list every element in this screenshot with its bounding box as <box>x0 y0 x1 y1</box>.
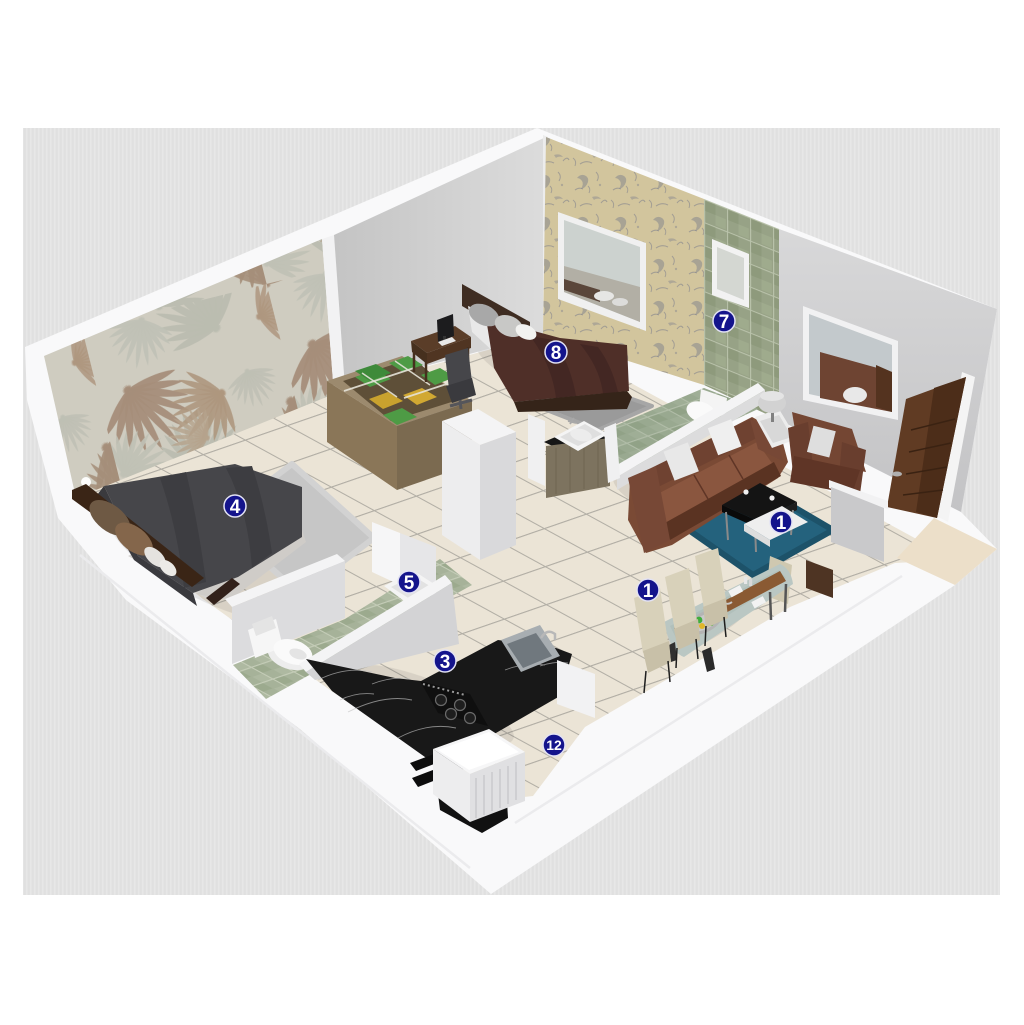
svg-text:12: 12 <box>546 737 562 753</box>
svg-text:7: 7 <box>719 312 730 333</box>
svg-text:8: 8 <box>551 343 562 364</box>
svg-text:5: 5 <box>404 573 415 594</box>
svg-text:4: 4 <box>230 497 241 518</box>
svg-text:1: 1 <box>643 581 654 602</box>
svg-text:3: 3 <box>440 652 451 673</box>
svg-text:1: 1 <box>776 513 787 534</box>
